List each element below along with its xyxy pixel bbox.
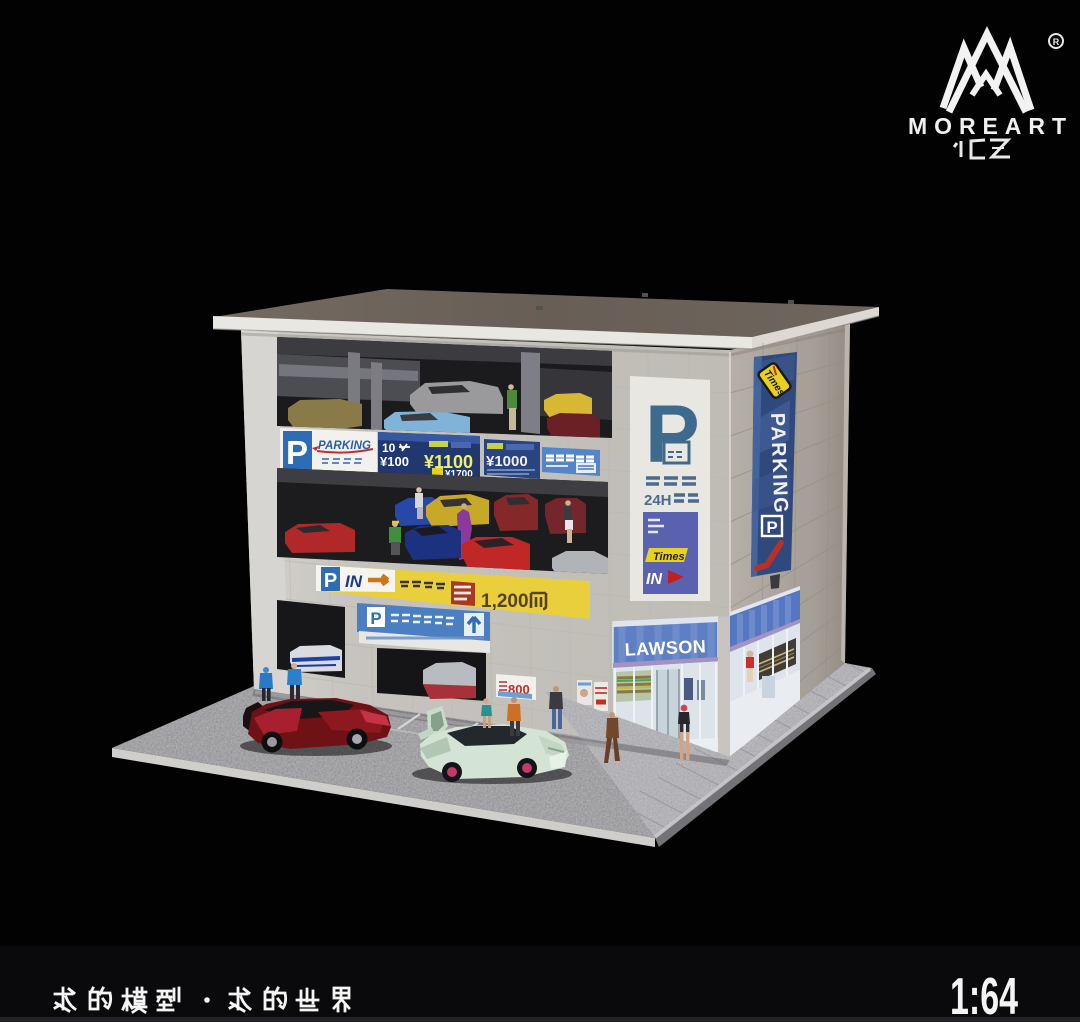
svg-text:P: P	[324, 570, 337, 592]
svg-text:1,200: 1,200	[481, 591, 529, 612]
svg-text:¥1000: ¥1000	[486, 453, 528, 470]
svg-text:P: P	[286, 434, 308, 471]
svg-text:P: P	[645, 389, 700, 480]
svg-text:24H: 24H	[644, 492, 672, 509]
svg-text:IN: IN	[646, 571, 662, 588]
svg-text:P: P	[766, 518, 777, 537]
svg-text:P: P	[370, 609, 381, 628]
svg-text:¥100: ¥100	[380, 454, 409, 469]
svg-text:PARKING: PARKING	[766, 412, 791, 513]
svg-text:R: R	[1053, 37, 1060, 47]
svg-text:Times: Times	[653, 551, 685, 563]
svg-text:1:64: 1:64	[950, 968, 1018, 1022]
svg-text:LAWSON: LAWSON	[624, 636, 707, 660]
svg-text:IN: IN	[345, 572, 363, 591]
svg-text:10: 10	[382, 441, 396, 455]
